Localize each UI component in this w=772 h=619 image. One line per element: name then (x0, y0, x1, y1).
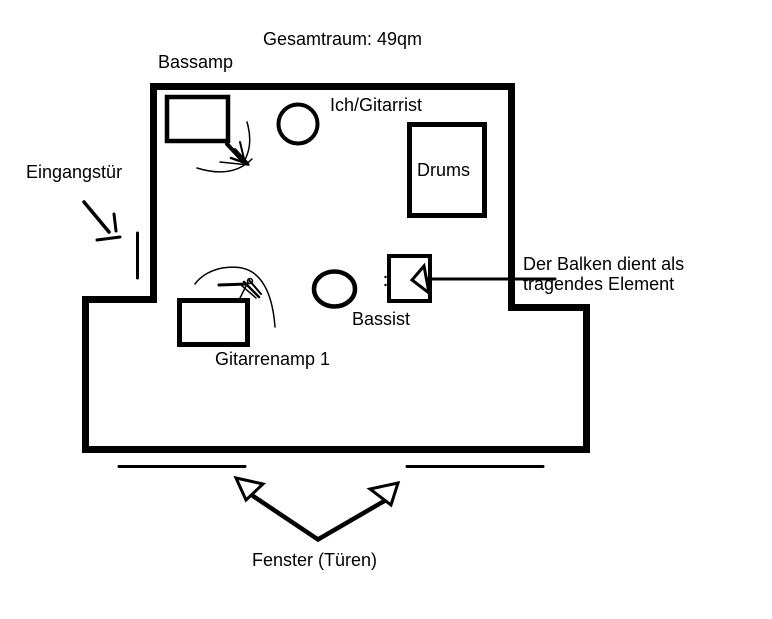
guitarist-label: Ich/Gitarrist (330, 96, 422, 114)
bassist-label: Bassist (352, 310, 410, 328)
window-label: Fenster (Türen) (252, 551, 377, 569)
beam-note: Der Balken dient als tragendes Element (523, 254, 684, 294)
entrance-door-label: Eingangstür (26, 163, 122, 181)
room-outline (86, 87, 587, 450)
guitar-amp-box (180, 301, 248, 345)
window-v-arrow-shafts (253, 496, 386, 540)
beam-pointer-arrowhead-icon (412, 266, 429, 293)
guitarist-circle (279, 105, 318, 144)
bassamp-label: Bassamp (158, 53, 233, 71)
window-arrowhead-left-icon (236, 478, 263, 500)
scribble-arrow-bassamp (197, 122, 252, 172)
floor-plan-canvas: Gesamtraum: 49qm Bassamp Ich/Gitarrist D… (0, 0, 772, 619)
total-area-title: Gesamtraum: 49qm (263, 30, 422, 48)
guitar-amp-label: Gitarrenamp 1 (215, 350, 330, 368)
entrance-arrow-shaft (84, 202, 109, 232)
stray-mark-dot (384, 276, 386, 278)
beam-note-line2: tragendes Element (523, 274, 684, 294)
scribble-arrow-guitaramp (195, 267, 275, 327)
bassist-circle (314, 272, 355, 307)
entrance-arrowhead-icon (97, 214, 120, 240)
beam-note-line1: Der Balken dient als (523, 254, 684, 274)
stray-mark-dot (384, 284, 386, 286)
bassamp-box (167, 97, 228, 141)
drums-label: Drums (417, 161, 470, 179)
